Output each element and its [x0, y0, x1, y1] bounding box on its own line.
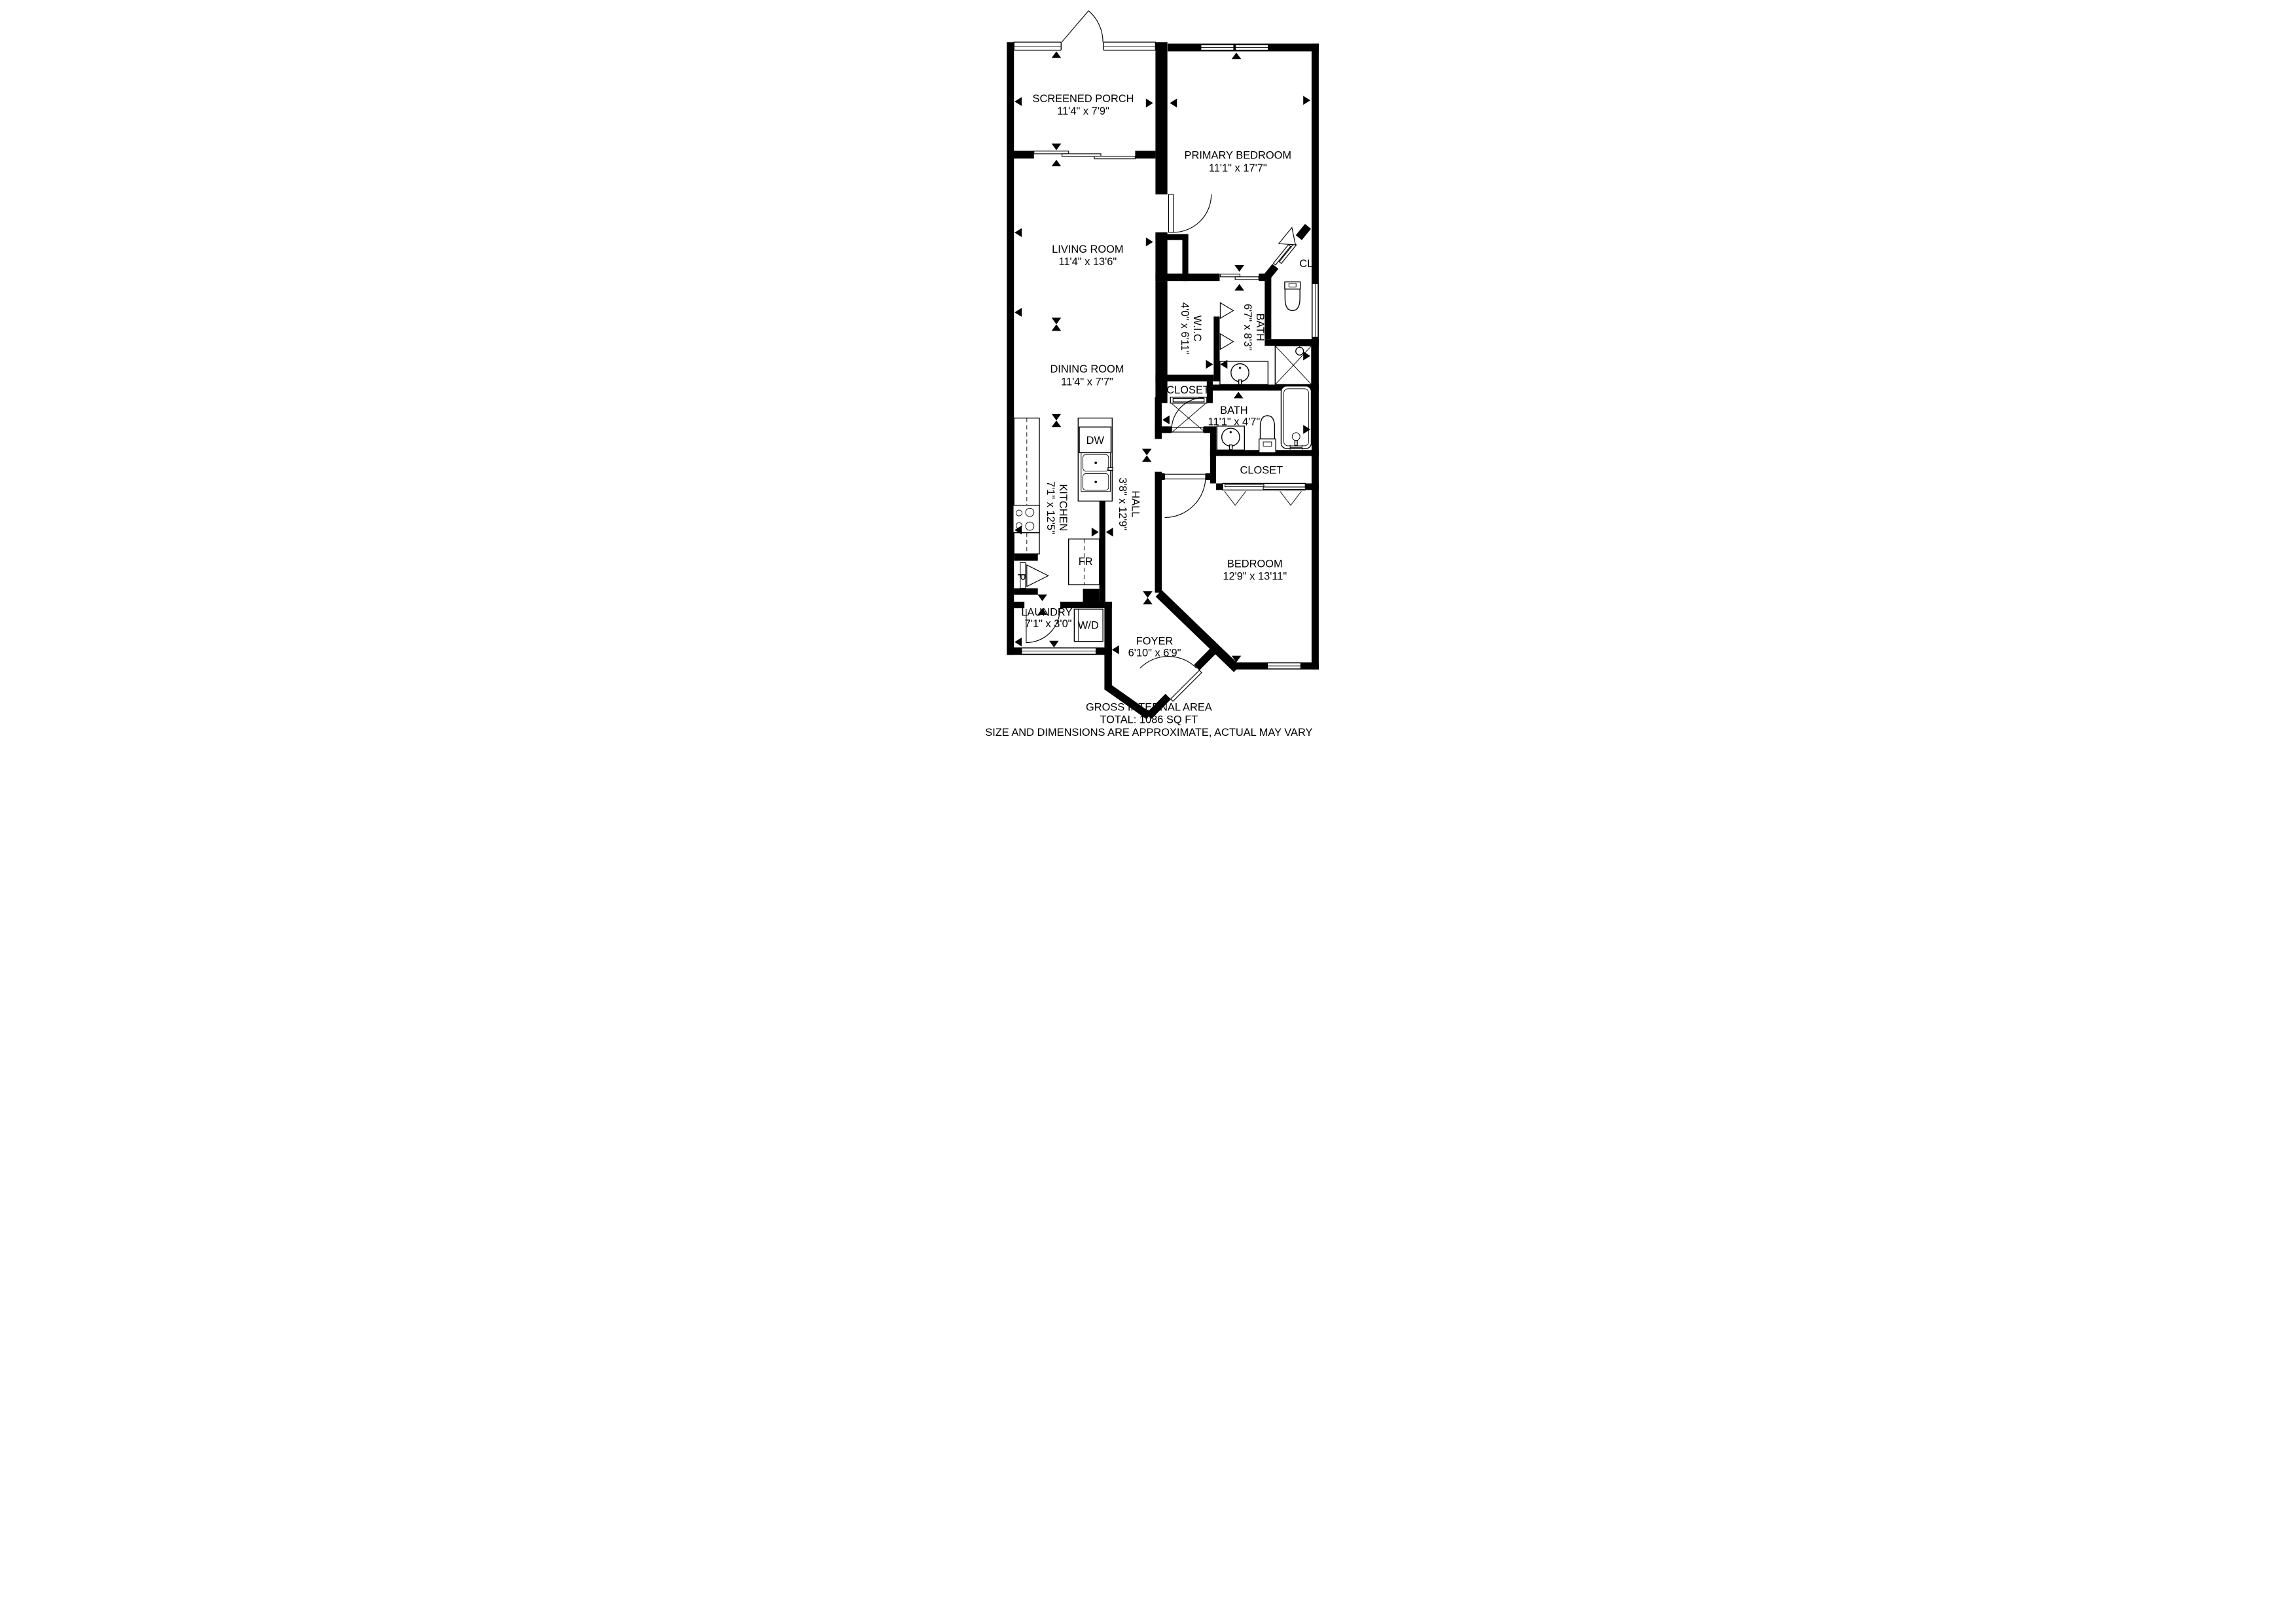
svg-text:3'8" x 12'9": 3'8" x 12'9" — [1117, 477, 1128, 530]
label-closet-hall: CLOSET — [1166, 384, 1210, 396]
svg-text:7'1" x 12'5": 7'1" x 12'5" — [1045, 481, 1056, 534]
footer: GROSS INTERNAL AREA TOTAL: 1086 SQ FT SI… — [985, 702, 1312, 739]
svg-text:12'9" x 13'11": 12'9" x 13'11" — [1223, 571, 1287, 583]
label-wic: W.I.C 4'0" x 6'11" — [1179, 302, 1203, 355]
label-primary-bedroom: PRIMARY BEDROOM 11'1" x 17'7" — [1185, 150, 1292, 174]
svg-text:11'1" x 4'7": 11'1" x 4'7" — [1208, 416, 1261, 428]
primary-bedroom-door — [1168, 194, 1211, 232]
label-dw: DW — [1086, 435, 1105, 447]
svg-text:LAUNDRY: LAUNDRY — [1021, 606, 1072, 618]
svg-text:BATH: BATH — [1254, 314, 1266, 342]
label-living-room: LIVING ROOM 11'4" x 13'6" — [1052, 244, 1123, 268]
label-bath2: BATH 11'1" x 4'7" — [1208, 405, 1261, 428]
label-pantry: P — [1015, 574, 1027, 581]
kitchen-counter — [1014, 418, 1039, 555]
bedroom-door — [1165, 474, 1206, 517]
bath2-vanity-icon — [1217, 426, 1244, 450]
svg-text:KITCHEN: KITCHEN — [1057, 484, 1069, 531]
label-kitchen: KITCHEN 7'1" x 12'5" — [1045, 481, 1069, 534]
svg-text:6'10" x 6'9": 6'10" x 6'9" — [1128, 647, 1181, 659]
footer-disclaimer: SIZE AND DIMENSIONS ARE APPROXIMATE, ACT… — [985, 727, 1312, 739]
label-dining-room: DINING ROOM 11'4" x 7'7" — [1050, 363, 1124, 388]
label-hall: HALL 3'8" x 12'9" — [1117, 477, 1141, 530]
bathtub-icon — [1281, 386, 1311, 450]
svg-text:6'7" x 8'3": 6'7" x 8'3" — [1242, 304, 1253, 351]
primary-toilet-icon — [1285, 282, 1300, 311]
label-laundry: LAUNDRY 7'1" x 3'0" — [1021, 606, 1072, 629]
cl-door-triangle — [1279, 228, 1296, 245]
svg-text:11'4" x 13'6": 11'4" x 13'6" — [1058, 256, 1117, 268]
porch-screen-door — [1062, 10, 1103, 42]
label-wd: W/D — [1078, 620, 1099, 632]
entry-door-opening — [1165, 665, 1202, 701]
kitchen-sink-icon — [1081, 452, 1113, 491]
svg-text:7'1" x 3'0": 7'1" x 3'0" — [1025, 618, 1072, 630]
label-primary-bath: BATH 6'7" x 8'3" — [1242, 304, 1266, 351]
shower-icon — [1275, 344, 1312, 385]
svg-text:11'4" x 7'7": 11'4" x 7'7" — [1061, 376, 1113, 388]
svg-text:FOYER: FOYER — [1136, 635, 1174, 647]
svg-text:BATH: BATH — [1220, 405, 1248, 416]
svg-text:11'1" x 17'7": 11'1" x 17'7" — [1209, 162, 1267, 174]
svg-text:4'0" x 6'11": 4'0" x 6'11" — [1179, 302, 1191, 355]
label-closet-bedroom: CLOSET — [1240, 464, 1283, 476]
footer-area-title: GROSS INTERNAL AREA — [1086, 702, 1212, 714]
svg-text:LIVING ROOM: LIVING ROOM — [1052, 244, 1123, 255]
svg-text:BEDROOM: BEDROOM — [1227, 558, 1283, 570]
porch-door-opening — [1061, 41, 1103, 51]
floor-plan-page: SCREENED PORCH 11'4" x 7'9" PRIMARY BEDR… — [624, 0, 1672, 740]
svg-text:11'4" x 7'9": 11'4" x 7'9" — [1057, 105, 1109, 117]
label-fr: FR — [1079, 556, 1093, 568]
kitchen-peninsula — [1078, 418, 1113, 501]
wic-door — [1220, 302, 1233, 349]
label-cl: CL — [1299, 258, 1313, 270]
label-foyer: FOYER 6'10" x 6'9" — [1128, 635, 1181, 659]
bedroom-closet-bifold — [1225, 491, 1302, 505]
svg-text:DINING ROOM: DINING ROOM — [1050, 363, 1124, 375]
label-screened-porch: SCREENED PORCH 11'4" x 7'9" — [1033, 93, 1134, 117]
floor-plan: SCREENED PORCH 11'4" x 7'9" PRIMARY BEDR… — [624, 0, 1672, 740]
svg-text:HALL: HALL — [1129, 490, 1141, 517]
svg-text:W.I.C: W.I.C — [1191, 316, 1203, 342]
label-bedroom: BEDROOM 12'9" x 13'11" — [1223, 558, 1287, 583]
svg-text:SCREENED PORCH: SCREENED PORCH — [1033, 93, 1134, 105]
bath2-toilet-icon — [1259, 416, 1276, 453]
footer-total: TOTAL: 1086 SQ FT — [1100, 714, 1198, 726]
svg-text:PRIMARY BEDROOM: PRIMARY BEDROOM — [1185, 150, 1292, 162]
